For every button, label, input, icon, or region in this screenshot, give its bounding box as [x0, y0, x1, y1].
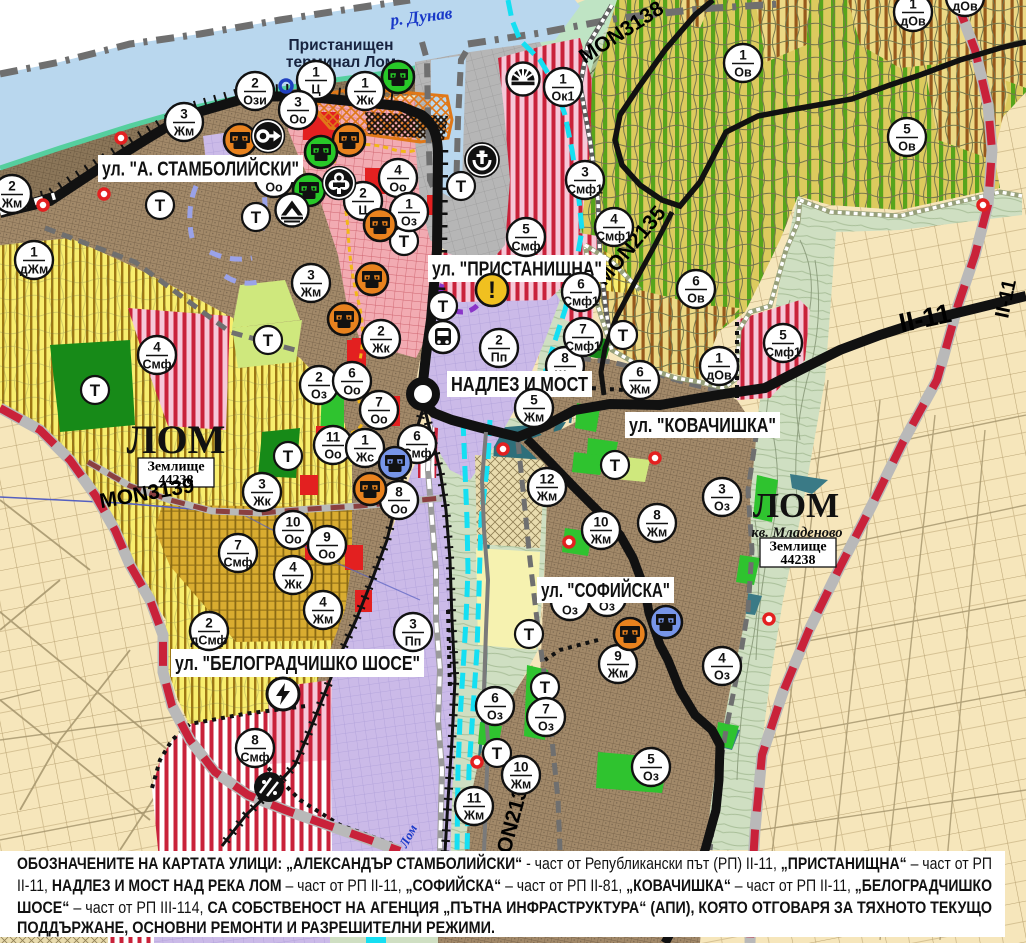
- svg-text:Жм: Жм: [463, 809, 485, 823]
- svg-text:Оз: Оз: [538, 720, 554, 734]
- svg-text:II-11, НАДЛЕЗ И МОСТ НАД РЕКА: II-11, НАДЛЕЗ И МОСТ НАД РЕКА ЛОМ – част…: [17, 876, 992, 895]
- svg-text:Смф: Смф: [240, 751, 269, 765]
- svg-text:Оз: Оз: [311, 388, 327, 402]
- svg-text:Оо: Оо: [324, 448, 342, 462]
- svg-text:Жс: Жс: [355, 451, 374, 465]
- svg-text:T: T: [399, 232, 410, 251]
- svg-text:3: 3: [180, 107, 188, 122]
- svg-text:ЛОМ: ЛОМ: [127, 417, 226, 462]
- svg-text:8: 8: [395, 485, 403, 500]
- svg-text:Жм: Жм: [510, 778, 532, 792]
- svg-text:2: 2: [377, 324, 385, 339]
- svg-text:дЖм: дЖм: [20, 263, 48, 277]
- svg-text:Жк: Жк: [371, 342, 390, 356]
- svg-text:Пп: Пп: [491, 351, 508, 365]
- svg-text:1: 1: [405, 197, 413, 212]
- svg-text:!: !: [488, 277, 496, 304]
- svg-text:Оз: Оз: [562, 604, 578, 618]
- svg-text:T: T: [263, 331, 274, 350]
- svg-text:дОв: дОв: [706, 369, 732, 383]
- svg-text:3: 3: [307, 268, 315, 283]
- svg-text:T: T: [524, 625, 535, 644]
- svg-text:T: T: [283, 447, 294, 466]
- svg-text:6: 6: [413, 429, 421, 444]
- svg-text:6: 6: [491, 691, 499, 706]
- svg-text:Оо: Оо: [343, 384, 361, 398]
- svg-text:2: 2: [315, 370, 323, 385]
- svg-text:2: 2: [205, 616, 213, 631]
- svg-text:4: 4: [394, 163, 402, 178]
- svg-text:Жм: Жм: [1, 197, 23, 211]
- svg-text:Ц: Ц: [311, 83, 321, 97]
- svg-text:3: 3: [294, 95, 302, 110]
- svg-text:T: T: [492, 744, 503, 763]
- svg-text:4: 4: [319, 595, 327, 610]
- svg-text:2: 2: [8, 179, 16, 194]
- svg-text:Жм: Жм: [646, 526, 668, 540]
- svg-text:Оо: Оо: [370, 413, 388, 427]
- svg-text:6: 6: [348, 366, 356, 381]
- svg-text:6: 6: [636, 365, 644, 380]
- svg-text:5: 5: [779, 328, 787, 343]
- svg-text:T: T: [90, 381, 101, 400]
- svg-text:Смф1: Смф1: [567, 183, 603, 197]
- svg-text:1: 1: [909, 0, 917, 12]
- svg-text:5: 5: [522, 222, 530, 237]
- svg-text:Пп: Пп: [405, 635, 422, 649]
- svg-text:4: 4: [610, 212, 618, 227]
- svg-text:Пристанищен: Пристанищен: [289, 37, 394, 54]
- svg-text:ул. "БЕЛОГРАДЧИШКО ШОСЕ": ул. "БЕЛОГРАДЧИШКО ШОСЕ": [175, 653, 420, 675]
- svg-text:ОБОЗНАЧЕНИТЕ НА КАРТАТА УЛИЦИ:: ОБОЗНАЧЕНИТЕ НА КАРТАТА УЛИЦИ: „АЛЕКСАНД…: [17, 854, 992, 873]
- svg-text:ул. "СОФИЙСКА": ул. "СОФИЙСКА": [541, 578, 670, 602]
- svg-text:Оо: Оо: [284, 533, 302, 547]
- svg-text:Ов: Ов: [734, 66, 752, 80]
- svg-text:T: T: [618, 326, 629, 345]
- svg-text:1: 1: [361, 433, 369, 448]
- svg-text:дОв: дОв: [900, 15, 926, 29]
- svg-text:T: T: [540, 678, 551, 697]
- svg-text:7: 7: [375, 395, 383, 410]
- svg-text:6: 6: [577, 277, 585, 292]
- svg-text:Жм: Жм: [607, 667, 629, 681]
- svg-text:Ози: Ози: [243, 94, 267, 108]
- svg-text:Жк: Жк: [283, 578, 302, 592]
- svg-text:Смф1: Смф1: [563, 295, 599, 309]
- svg-text:ШОСЕ“ – част от РП III-114, СА: ШОСЕ“ – част от РП III-114, СА СОБСТВЕНО…: [17, 898, 992, 917]
- svg-text:4: 4: [153, 340, 161, 355]
- svg-text:Оз: Оз: [714, 669, 730, 683]
- svg-text:НАДЛЕЗ И МОСТ: НАДЛЕЗ И МОСТ: [451, 374, 588, 396]
- svg-text:Оо: Оо: [265, 181, 283, 195]
- svg-text:T: T: [438, 297, 449, 316]
- svg-text:Оо: Оо: [318, 548, 336, 562]
- svg-text:T: T: [155, 196, 166, 215]
- svg-text:Жк: Жк: [252, 495, 271, 509]
- svg-text:ЛОМ: ЛОМ: [753, 486, 839, 525]
- svg-text:дОв: дОв: [952, 0, 978, 14]
- svg-text:1: 1: [739, 48, 747, 63]
- svg-text:T: T: [251, 208, 262, 227]
- svg-text:Смф1: Смф1: [765, 346, 801, 360]
- svg-text:2: 2: [359, 186, 367, 201]
- svg-text:1: 1: [312, 65, 320, 80]
- svg-text:9: 9: [614, 649, 622, 664]
- svg-text:4: 4: [718, 651, 726, 666]
- svg-text:Жм: Жм: [536, 490, 558, 504]
- svg-text:3: 3: [581, 165, 589, 180]
- svg-text:5: 5: [903, 122, 911, 137]
- svg-text:9: 9: [323, 530, 331, 545]
- svg-text:10: 10: [593, 515, 608, 530]
- svg-text:1: 1: [559, 72, 567, 87]
- svg-text:2: 2: [495, 333, 503, 348]
- svg-text:Смф: Смф: [223, 556, 252, 570]
- svg-text:Смф: Смф: [511, 240, 540, 254]
- svg-text:2: 2: [251, 76, 259, 91]
- svg-text:Оо: Оо: [289, 113, 307, 127]
- svg-text:1: 1: [30, 245, 38, 260]
- svg-text:Жм: Жм: [173, 125, 195, 139]
- svg-text:1: 1: [715, 351, 723, 366]
- svg-text:ПОДДЪРЖАНЕ, ОСНОВНИ РЕМОНТИ И: ПОДДЪРЖАНЕ, ОСНОВНИ РЕМОНТИ И РАЗРЕШИТЕЛ…: [17, 918, 495, 937]
- svg-text:Жк: Жк: [355, 94, 374, 108]
- svg-text:8: 8: [251, 733, 259, 748]
- svg-text:ул. "А. СТАМБОЛИЙСКИ": ул. "А. СТАМБОЛИЙСКИ": [102, 157, 299, 181]
- svg-text:Жм: Жм: [300, 286, 322, 300]
- svg-text:Оо: Оо: [390, 503, 408, 517]
- svg-text:Ов: Ов: [898, 140, 916, 154]
- svg-text:12: 12: [539, 472, 554, 487]
- svg-text:11: 11: [326, 430, 341, 445]
- svg-text:7: 7: [579, 322, 587, 337]
- svg-text:дСмф: дСмф: [191, 634, 228, 648]
- svg-text:4: 4: [289, 560, 297, 575]
- svg-text:ул. "КОВАЧИШКА": ул. "КОВАЧИШКА": [629, 415, 776, 437]
- svg-text:5: 5: [647, 752, 655, 767]
- svg-text:Ок1: Ок1: [552, 90, 575, 104]
- svg-text:6: 6: [692, 274, 700, 289]
- svg-text:1: 1: [361, 76, 369, 91]
- svg-text:3: 3: [409, 617, 417, 632]
- svg-text:Жм: Жм: [590, 533, 612, 547]
- svg-text:Оз: Оз: [643, 770, 659, 784]
- svg-text:10: 10: [285, 515, 300, 530]
- svg-text:Жм: Жм: [629, 383, 651, 397]
- svg-text:10: 10: [513, 760, 528, 775]
- svg-text:Смф1: Смф1: [565, 340, 601, 354]
- svg-text:Оз: Оз: [487, 709, 503, 723]
- svg-text:Смф: Смф: [142, 358, 171, 372]
- svg-text:T: T: [610, 456, 621, 475]
- svg-text:8: 8: [653, 508, 661, 523]
- svg-text:Смф1: Смф1: [596, 230, 632, 244]
- svg-text:Ов: Ов: [687, 292, 705, 306]
- svg-text:5: 5: [530, 393, 538, 408]
- svg-text:3: 3: [718, 482, 726, 497]
- svg-text:7: 7: [542, 702, 550, 717]
- svg-text:Оз: Оз: [714, 500, 730, 514]
- svg-text:Оз: Оз: [401, 215, 417, 229]
- svg-text:Жм: Жм: [523, 411, 545, 425]
- svg-text:7: 7: [234, 538, 242, 553]
- svg-text:44238: 44238: [781, 553, 816, 568]
- svg-text:Жм: Жм: [312, 613, 334, 627]
- svg-text:T: T: [456, 177, 467, 196]
- svg-text:3: 3: [258, 477, 266, 492]
- svg-text:11: 11: [467, 791, 482, 806]
